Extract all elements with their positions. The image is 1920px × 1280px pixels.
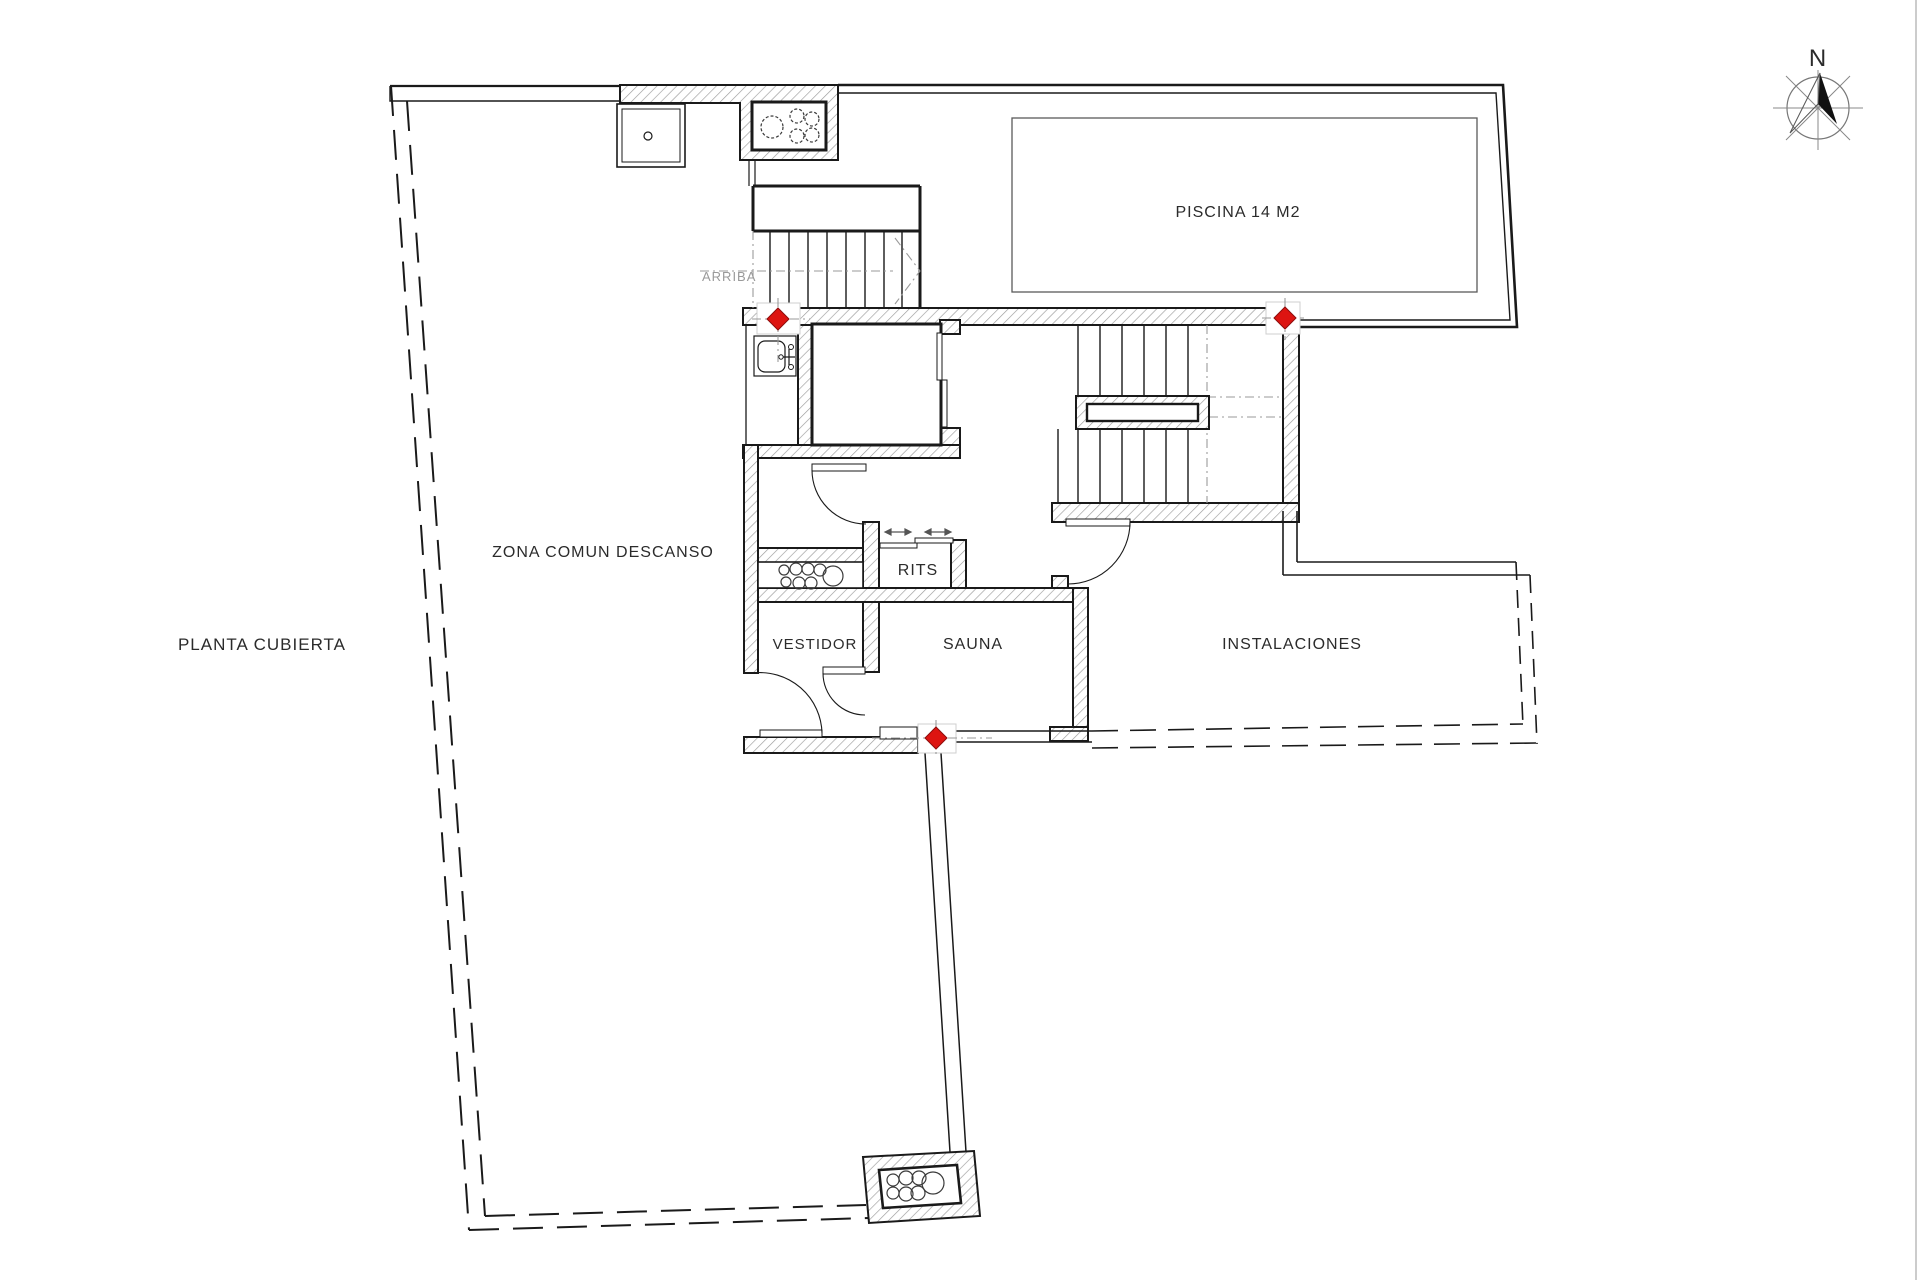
wall-sauna-right-foot bbox=[1050, 727, 1088, 741]
terrace-parapet-top-inner bbox=[390, 86, 622, 101]
wall-elevator-bottom bbox=[743, 445, 960, 458]
compass-needle-open bbox=[1790, 73, 1820, 133]
stairs-arriba: ARRIBA bbox=[700, 161, 920, 308]
elevator-sliding-door bbox=[942, 380, 947, 427]
door-leaf-vestidor-entry bbox=[760, 730, 822, 737]
wall-stair-right bbox=[1283, 333, 1299, 511]
door-arc-lobby bbox=[812, 470, 866, 524]
terrace-edge-bottom-inner bbox=[485, 1205, 866, 1216]
stairs-direction-arrow-icon bbox=[895, 238, 920, 304]
door-leaf-stairs bbox=[1066, 519, 1130, 526]
vestidor-label: VESTIDOR bbox=[773, 636, 858, 653]
sink-icon bbox=[754, 336, 796, 376]
compass-north-label: N bbox=[1809, 45, 1827, 72]
wall-vestidor-right bbox=[863, 602, 879, 672]
stairs-main-upper-treads bbox=[1078, 325, 1188, 396]
wall-elevator-right-top bbox=[940, 320, 960, 334]
door-leaf-vestidor-inner bbox=[823, 667, 865, 674]
rits-sliding-door bbox=[880, 529, 953, 548]
wall-sauna-right bbox=[1073, 588, 1088, 740]
sauna-label: SAUNA bbox=[943, 636, 1003, 653]
pool-enclosure: PISCINA 14 M2 bbox=[838, 85, 1517, 327]
door-arc-vestidor-inner bbox=[823, 673, 865, 715]
stairs-main bbox=[1058, 325, 1281, 503]
instalaciones-boundary bbox=[1092, 511, 1537, 748]
wall-rooms-top bbox=[744, 588, 1088, 602]
door-arc-vestidor-entry bbox=[753, 673, 822, 733]
vent-box-top bbox=[752, 102, 826, 150]
instalaciones-edge-bottom bbox=[1092, 724, 1537, 748]
rits-label: RITS bbox=[898, 562, 938, 579]
terrace-edge-left-outer bbox=[391, 86, 469, 1230]
elevator-room-outline bbox=[812, 324, 941, 445]
compass-rose-icon: N bbox=[1773, 45, 1863, 150]
stair-rail-inner bbox=[1087, 404, 1198, 421]
stairs-arriba-frame bbox=[753, 186, 920, 308]
wall-building-left bbox=[744, 445, 758, 673]
elevator-sliding-door bbox=[937, 333, 942, 380]
wall-mid-horizontal bbox=[743, 308, 1270, 325]
compass-needle bbox=[1818, 73, 1837, 124]
vent-room-mid bbox=[758, 562, 863, 589]
terrace-boundary bbox=[390, 86, 869, 1230]
shower-tray-icon bbox=[617, 104, 685, 167]
terrace-edge-bottom-outer bbox=[469, 1218, 869, 1230]
door-arc-stairs bbox=[1068, 522, 1130, 584]
zona-comun-label: ZONA COMUN DESCANSO bbox=[492, 544, 714, 561]
instalaciones-label: INSTALACIONES bbox=[1222, 636, 1362, 653]
stairs-arriba-treads bbox=[770, 231, 902, 308]
pool-label: PISCINA 14 M2 bbox=[1175, 204, 1300, 221]
walkway bbox=[925, 753, 966, 1152]
vent-box-top-frame bbox=[752, 102, 826, 150]
stairs-main-lower-treads bbox=[1078, 429, 1188, 503]
double-arrow-icon bbox=[885, 529, 951, 535]
wall-duct-slot bbox=[880, 727, 917, 739]
terrace-edge-left-inner bbox=[407, 101, 485, 1216]
floor-plan-page: PISCINA 14 M2 bbox=[0, 0, 1920, 1280]
pool-parapet-inner bbox=[838, 93, 1510, 320]
page-title: PLANTA CUBIERTA bbox=[178, 635, 346, 654]
floor-plan-drawing: PISCINA 14 M2 bbox=[0, 0, 1920, 1280]
arriba-label: ARRIBA bbox=[702, 269, 756, 284]
instalaciones-edge-right bbox=[1516, 562, 1537, 744]
vent-box-bottom bbox=[863, 1151, 980, 1223]
instalaciones-parapet bbox=[1283, 511, 1530, 575]
wall-elevator-left bbox=[798, 325, 812, 445]
stairs-arriba-upper-link bbox=[749, 161, 755, 186]
elevator-room bbox=[812, 324, 947, 445]
door-leaf-lobby bbox=[812, 464, 866, 471]
